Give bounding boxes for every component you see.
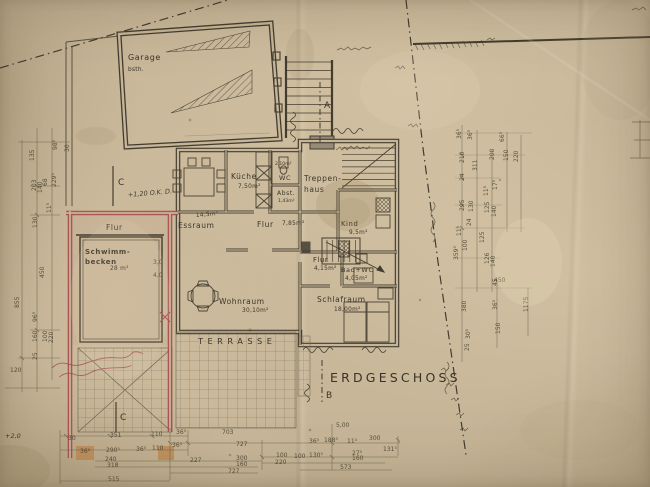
dimension-text: 36⁵ xyxy=(456,128,463,139)
dimension-text: 210 xyxy=(459,151,466,163)
dimension-text: 36⁵ xyxy=(80,448,91,455)
dimension-text: 318 xyxy=(107,462,119,469)
dimension-text: 36⁵ xyxy=(492,299,499,310)
section-marker-c-left: C xyxy=(118,178,124,188)
dimension-text: 140 xyxy=(491,205,498,217)
garage-hatch-wedge xyxy=(166,31,250,52)
room-sub-garage: bsth. xyxy=(128,67,144,73)
dimension-text: 100 xyxy=(462,239,469,251)
room-area-flur-klein: 4,15m² xyxy=(314,265,337,272)
dimension-text: 36⁵ xyxy=(309,438,320,445)
dimension-text: 130 xyxy=(32,216,39,228)
dimension-text: 290⁵ xyxy=(106,447,120,454)
dimension-text: 11⁵ xyxy=(347,438,358,445)
dimension-text: 100 xyxy=(276,452,288,459)
room-area-schlafraum: 18,00m² xyxy=(334,306,361,313)
section-marker-b: B xyxy=(326,391,332,401)
dining-table xyxy=(184,168,214,196)
dimension-text: 150 xyxy=(503,149,510,161)
floor-plan-drawing: A B C C Garage bsth. Küche 7,50m² 2,10m²… xyxy=(0,0,650,487)
floor-title: ERDGESCHOSS xyxy=(330,370,461,385)
dimension-text: 450 xyxy=(39,266,46,278)
dimension-text: 98⁵ xyxy=(52,139,59,150)
dimension-text: 220 xyxy=(275,459,287,466)
dimension-text: 36⁵ xyxy=(172,442,183,449)
dimension-text: 130 xyxy=(468,200,475,212)
section-marker-c-bottom: C xyxy=(120,413,126,423)
bed xyxy=(367,302,389,342)
dimension-text: 11⁵ xyxy=(456,225,463,236)
dimension-text: 160 xyxy=(32,330,39,342)
dimension-text: 66⁵ xyxy=(499,131,506,142)
dimension-text: 131⁵ xyxy=(383,446,397,453)
terrace-label: TERRASSE xyxy=(197,336,276,346)
dimension-text: 220 xyxy=(513,150,520,162)
dimension-text: 30 xyxy=(64,144,71,152)
dimension-text: 359⁵ xyxy=(453,246,460,260)
dimension-text: 188⁵ xyxy=(324,437,338,444)
dimension-text: 573 xyxy=(340,464,352,471)
dimension-text: 110 xyxy=(152,445,164,452)
dimension-text: 200 xyxy=(489,148,496,160)
wardrobe xyxy=(378,288,393,299)
dimension-text: 135 xyxy=(29,149,36,161)
room-label-kueche: Küche xyxy=(231,172,257,181)
dimension-text: 160 xyxy=(236,461,248,468)
dimension-text: 229⁵ xyxy=(51,173,58,187)
dimension-text: 160 xyxy=(352,455,364,462)
room-label-flur-klein: Flur xyxy=(313,256,328,264)
room-area-bad: 4,05m² xyxy=(345,275,368,282)
dimension-text: 727 xyxy=(236,441,248,448)
dimension-text: 220 xyxy=(48,331,55,343)
garage-hatch-wedge xyxy=(171,70,252,113)
dimension-text: 100 xyxy=(294,453,306,460)
room-label-abst: Abst. xyxy=(277,190,295,197)
dimension-text: 11⁵ xyxy=(483,185,490,196)
dimension-text: 380 xyxy=(461,300,468,312)
room-area-abst: 1,43m² xyxy=(278,198,295,204)
dimension-text: 727 xyxy=(228,468,240,475)
room-label-essraum: Essraum xyxy=(178,221,215,230)
kind-desk xyxy=(376,215,390,228)
room-label-schlafraum: Schlafraum xyxy=(317,295,366,304)
round-table xyxy=(191,284,215,308)
dimension-text: 311 xyxy=(472,159,479,171)
dimension-text: 36⁵ xyxy=(176,429,187,436)
dimension-text: 150 xyxy=(495,322,502,334)
room-label-flur: Flur xyxy=(257,220,274,229)
dimension-text: 24 xyxy=(459,173,466,181)
dimension-text: 515 xyxy=(108,476,120,483)
shaft-hatch xyxy=(339,241,349,257)
dimension-text: 25 xyxy=(32,352,39,360)
stair-direction-arrowhead xyxy=(377,266,384,272)
section-marker-a: A xyxy=(324,101,331,111)
level-annotation: +1,20 O.K. D. xyxy=(127,187,172,199)
room-area-kueche: 7,50m² xyxy=(238,183,261,190)
room-label-bad: Bad+WC xyxy=(341,266,374,274)
dimension-text: 24 xyxy=(466,218,473,226)
room-label-wc: WC xyxy=(279,174,291,182)
hand-mark: +2,0 xyxy=(5,432,21,440)
house-exterior-walls xyxy=(178,141,397,345)
dimension-text: 17⁵ xyxy=(492,179,499,190)
dimension-text: 5,00 xyxy=(336,422,350,429)
dimension-text: 125 xyxy=(479,231,486,243)
dimension-text: 30 xyxy=(68,435,76,442)
room-area-wc: 2,10m² xyxy=(275,161,292,167)
dimension-text: 130⁵ xyxy=(309,452,323,459)
room-label-garage: Garage xyxy=(128,53,161,62)
room-label-wohnraum: Wohnraum xyxy=(219,297,265,306)
dimension-text: 96⁵ xyxy=(32,311,39,322)
floor-plan-sheet: A B C C Garage bsth. Küche 7,50m² 2,10m²… xyxy=(0,0,650,487)
pillar xyxy=(302,242,310,253)
dimension-text: 25 xyxy=(464,343,471,351)
dimension-text: 11⁵ xyxy=(46,202,53,213)
dimension-text: 855 xyxy=(14,296,21,308)
dimension-text: 36⁵ xyxy=(467,129,474,140)
garage-outline xyxy=(119,23,282,147)
room-area-wohnraum: 30,10m² xyxy=(242,307,269,314)
dimension-text: 110 xyxy=(151,431,163,438)
dimension-text: 227 xyxy=(190,457,202,464)
dimension-text: 351 xyxy=(110,432,122,439)
dimension-text: 703 xyxy=(222,429,234,436)
dimension-text: 120 xyxy=(10,367,22,374)
dimension-text: 36⁵ xyxy=(136,446,147,453)
room-area-flur: 7,85m² xyxy=(282,220,305,227)
dimension-text: 68 xyxy=(42,178,49,186)
dimension-text: 295 xyxy=(459,199,466,211)
dimension-text: 30⁵ xyxy=(465,328,472,339)
dimension-text: 300 xyxy=(369,435,381,442)
dimension-text: 125 xyxy=(484,201,491,213)
